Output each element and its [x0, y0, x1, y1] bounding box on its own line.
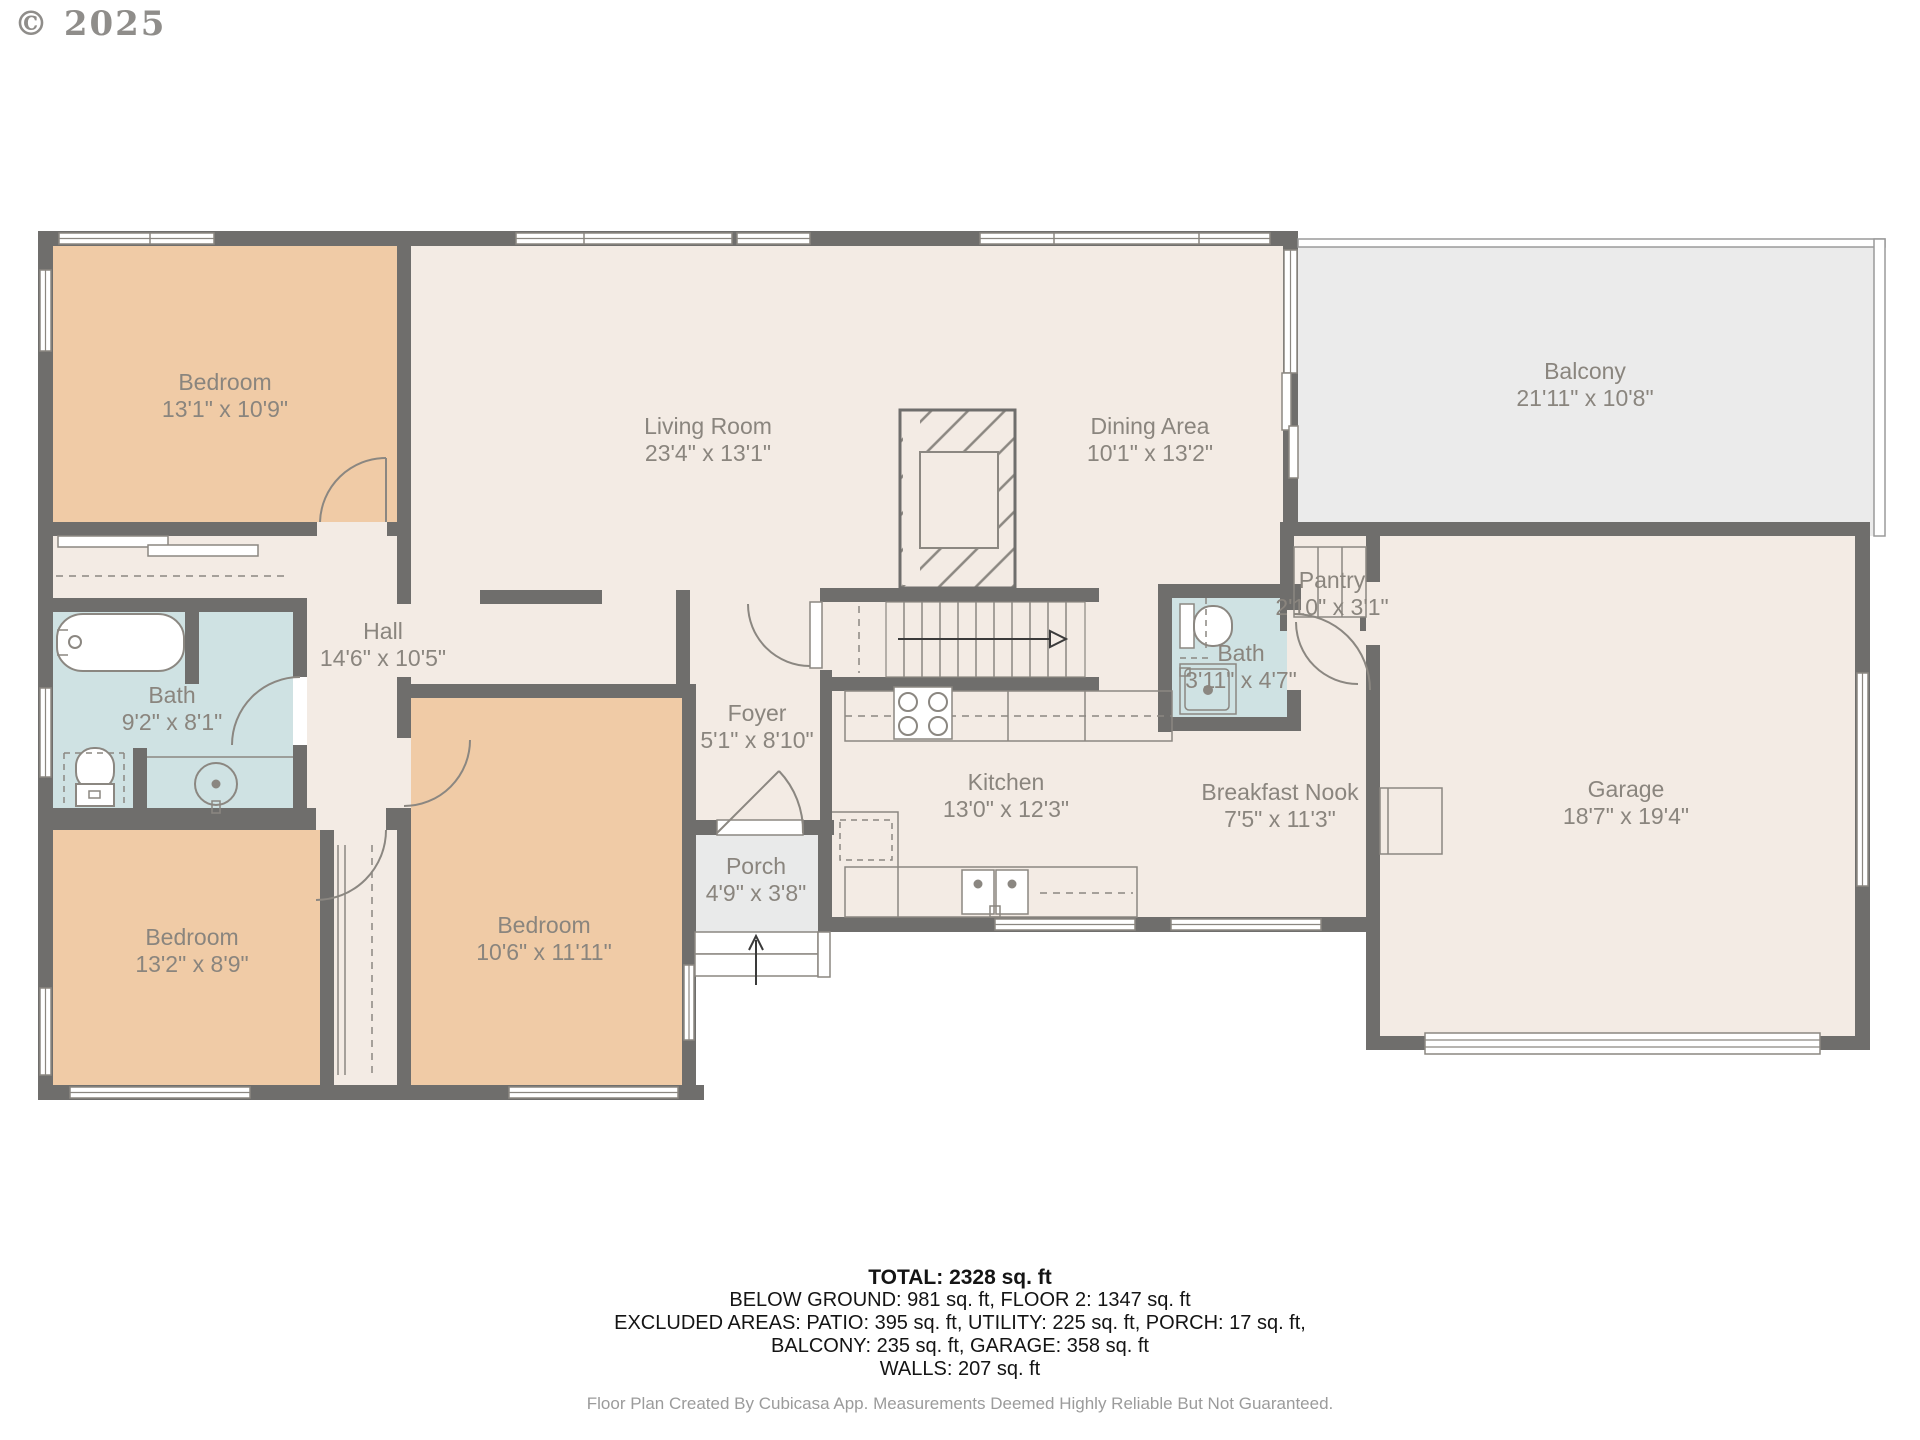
total-area: TOTAL: 2328 sq. ft [0, 1266, 1920, 1289]
bedroom-top-left-floor [53, 246, 397, 522]
area-line-walls: WALLS: 207 sq. ft [0, 1358, 1920, 1381]
porch-steps [695, 932, 830, 977]
stove [894, 687, 952, 739]
front-door [717, 820, 803, 835]
sliding-door-leaf [1289, 426, 1298, 478]
disclaimer-text: Floor Plan Created By Cubicasa App. Meas… [0, 1392, 1920, 1415]
bedroom-bottom-middle-floor [411, 698, 682, 1085]
stairs [859, 602, 1085, 677]
area-summary: TOTAL: 2328 sq. ft BELOW GROUND: 981 sq.… [0, 1266, 1920, 1415]
garage-door [1425, 1033, 1820, 1054]
area-line-floors: BELOW GROUND: 981 sq. ft, FLOOR 2: 1347 … [0, 1289, 1920, 1312]
water-heater [1380, 788, 1442, 854]
area-line-excluded: EXCLUDED AREAS: PATIO: 395 sq. ft, UTILI… [0, 1312, 1920, 1335]
bathtub [57, 614, 184, 671]
floor-plan: Bedroom 13'1" x 10'9" Living Room 23'4" … [0, 0, 1920, 1440]
area-line-balcony-garage: BALCONY: 235 sq. ft, GARAGE: 358 sq. ft [0, 1335, 1920, 1358]
floor-plan-drawing [0, 0, 1920, 1440]
bedroom-bottom-left-floor [53, 830, 320, 1085]
porch-floor [695, 835, 818, 932]
copyright-year: © 2025 [14, 4, 166, 44]
sliding-door-leaf [1282, 373, 1291, 430]
balcony-floor [1298, 239, 1885, 536]
fireplace [900, 410, 1015, 588]
